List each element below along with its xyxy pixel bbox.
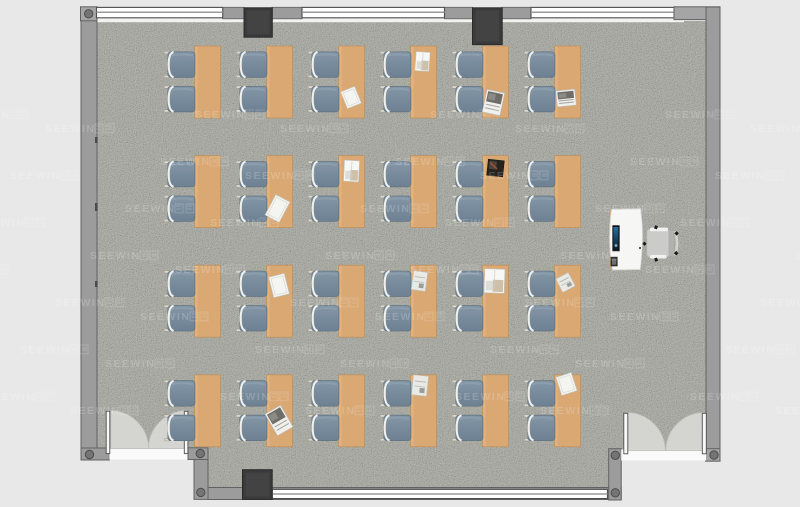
svg-text:SEEWIN: SEEWIN bbox=[595, 203, 645, 215]
svg-text:SEEWIN: SEEWIN bbox=[0, 109, 10, 121]
svg-text:SEEWIN: SEEWIN bbox=[525, 297, 575, 309]
svg-text:SEEWIN: SEEWIN bbox=[55, 297, 105, 309]
svg-text:SEEWIN: SEEWIN bbox=[410, 264, 460, 276]
svg-text:SEEWIN: SEEWIN bbox=[725, 344, 775, 356]
svg-text:SEEWIN: SEEWIN bbox=[540, 405, 590, 417]
svg-text:SEEWIN: SEEWIN bbox=[160, 156, 210, 168]
svg-text:SEEWIN: SEEWIN bbox=[575, 358, 625, 370]
svg-text:SEEWIN: SEEWIN bbox=[305, 405, 355, 417]
svg-text:SEEWIN: SEEWIN bbox=[775, 405, 800, 417]
svg-text:SEEWIN: SEEWIN bbox=[480, 170, 530, 182]
svg-text:SEEWIN: SEEWIN bbox=[560, 250, 610, 262]
svg-text:SEEWIN: SEEWIN bbox=[645, 264, 695, 276]
svg-text:SEEWIN: SEEWIN bbox=[445, 217, 495, 229]
svg-text:SEEWIN: SEEWIN bbox=[750, 123, 800, 135]
svg-text:SEEWIN: SEEWIN bbox=[45, 123, 95, 135]
svg-text:SEEWIN: SEEWIN bbox=[175, 264, 225, 276]
svg-text:SEEWIN: SEEWIN bbox=[195, 109, 245, 121]
svg-text:SEEWIN: SEEWIN bbox=[0, 217, 25, 229]
svg-text:SEEWIN: SEEWIN bbox=[280, 123, 330, 135]
svg-text:SEEWIN: SEEWIN bbox=[10, 170, 60, 182]
svg-text:SEEWIN: SEEWIN bbox=[455, 391, 505, 403]
svg-text:SEEWIN: SEEWIN bbox=[340, 358, 390, 370]
svg-text:SEEWIN: SEEWIN bbox=[220, 391, 270, 403]
svg-text:SEEWIN: SEEWIN bbox=[105, 358, 155, 370]
svg-text:SEEWIN: SEEWIN bbox=[125, 203, 175, 215]
svg-text:SEEWIN: SEEWIN bbox=[20, 344, 70, 356]
svg-text:SEEWIN: SEEWIN bbox=[90, 250, 140, 262]
svg-text:SEEWIN: SEEWIN bbox=[210, 217, 260, 229]
svg-text:SEEWIN: SEEWIN bbox=[490, 344, 540, 356]
svg-text:SEEWIN: SEEWIN bbox=[690, 391, 740, 403]
svg-text:SEEWIN: SEEWIN bbox=[325, 250, 375, 262]
svg-text:SEEWIN: SEEWIN bbox=[255, 344, 305, 356]
svg-text:SEEWIN: SEEWIN bbox=[760, 297, 800, 309]
svg-text:SEEWIN: SEEWIN bbox=[140, 311, 190, 323]
svg-text:SEEWIN: SEEWIN bbox=[375, 311, 425, 323]
svg-text:SEEWIN: SEEWIN bbox=[515, 123, 565, 135]
svg-text:SEEWIN: SEEWIN bbox=[715, 170, 765, 182]
svg-text:SEEWIN: SEEWIN bbox=[395, 156, 445, 168]
svg-text:SEEWIN: SEEWIN bbox=[610, 311, 660, 323]
svg-text:SEEWIN: SEEWIN bbox=[795, 250, 800, 262]
svg-text:SEEWIN: SEEWIN bbox=[70, 405, 120, 417]
svg-text:SEEWIN: SEEWIN bbox=[0, 391, 35, 403]
svg-text:SEEWIN: SEEWIN bbox=[430, 109, 480, 121]
svg-text:SEEWIN: SEEWIN bbox=[290, 297, 340, 309]
svg-text:SEEWIN: SEEWIN bbox=[360, 203, 410, 215]
svg-text:SEEWIN: SEEWIN bbox=[680, 217, 730, 229]
svg-text:SEEWIN: SEEWIN bbox=[665, 109, 715, 121]
svg-text:SEEWIN: SEEWIN bbox=[630, 156, 680, 168]
svg-text:SEEWIN: SEEWIN bbox=[245, 170, 295, 182]
